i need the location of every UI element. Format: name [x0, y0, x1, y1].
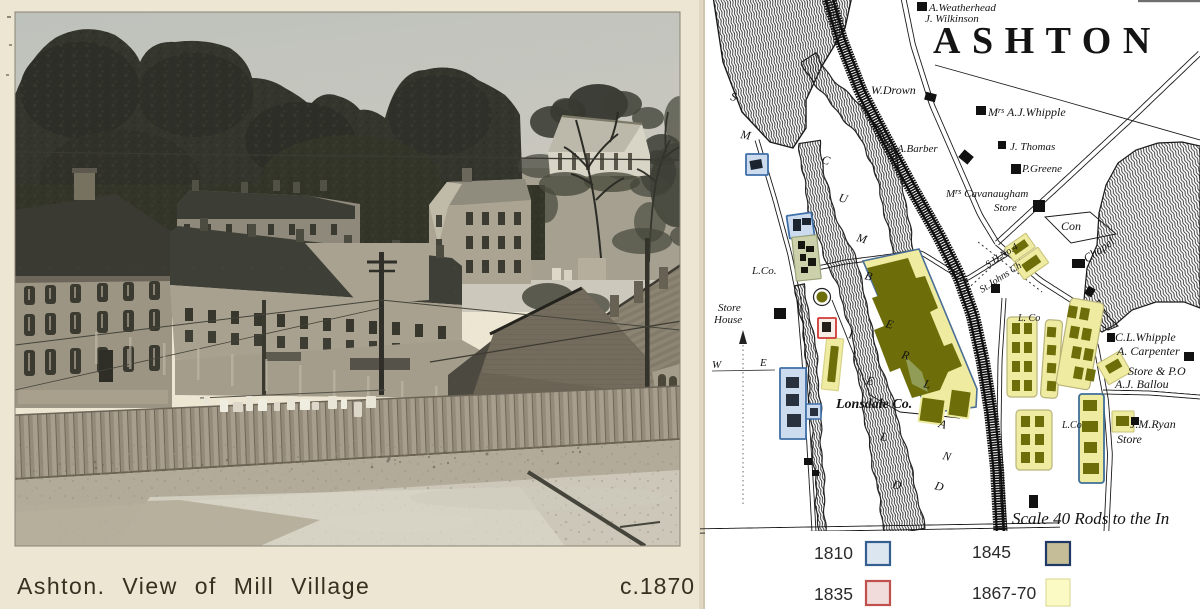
svg-text:1867-70: 1867-70	[972, 583, 1036, 603]
svg-text:1835: 1835	[814, 584, 853, 604]
svg-text:P.Greene: P.Greene	[1021, 163, 1062, 175]
svg-text:Ashton. View of Mill Village: Ashton. View of Mill Village	[17, 573, 370, 599]
svg-text:Store & P.O: Store & P.O	[1128, 364, 1186, 378]
svg-text:1845: 1845	[972, 542, 1011, 562]
svg-text:Store: Store	[718, 302, 741, 314]
svg-text:Scale 40 Rods to the In: Scale 40 Rods to the In	[1012, 509, 1169, 528]
svg-text:L.Co.: L.Co.	[751, 265, 776, 277]
svg-text:A.J. Ballou: A.J. Ballou	[1114, 377, 1169, 391]
svg-text:C.L.Whipple: C.L.Whipple	[1115, 330, 1176, 344]
svg-text:L. Co: L. Co	[1017, 313, 1040, 324]
svg-text:Store: Store	[994, 202, 1017, 214]
svg-text:ASHTON: ASHTON	[933, 20, 1162, 62]
svg-text:E: E	[759, 357, 767, 369]
svg-text:House: House	[713, 314, 742, 326]
svg-text:c.1870: c.1870	[620, 573, 695, 599]
svg-text:A.Barber: A.Barber	[896, 143, 938, 155]
svg-text:Con: Con	[1061, 219, 1081, 233]
svg-text:W: W	[712, 359, 722, 371]
svg-text:Lonsdale Co.: Lonsdale Co.	[835, 397, 912, 412]
svg-text:W.Drown: W.Drown	[871, 83, 916, 97]
svg-text:1810: 1810	[814, 543, 853, 563]
svg-text:J.M.Ryan: J.M.Ryan	[1130, 417, 1176, 431]
svg-text:A. Carpenter: A. Carpenter	[1116, 344, 1180, 358]
svg-text:J. Thomas: J. Thomas	[1010, 141, 1055, 153]
svg-text:L.Co: L.Co	[1061, 420, 1082, 431]
svg-text:Store: Store	[1117, 432, 1143, 446]
